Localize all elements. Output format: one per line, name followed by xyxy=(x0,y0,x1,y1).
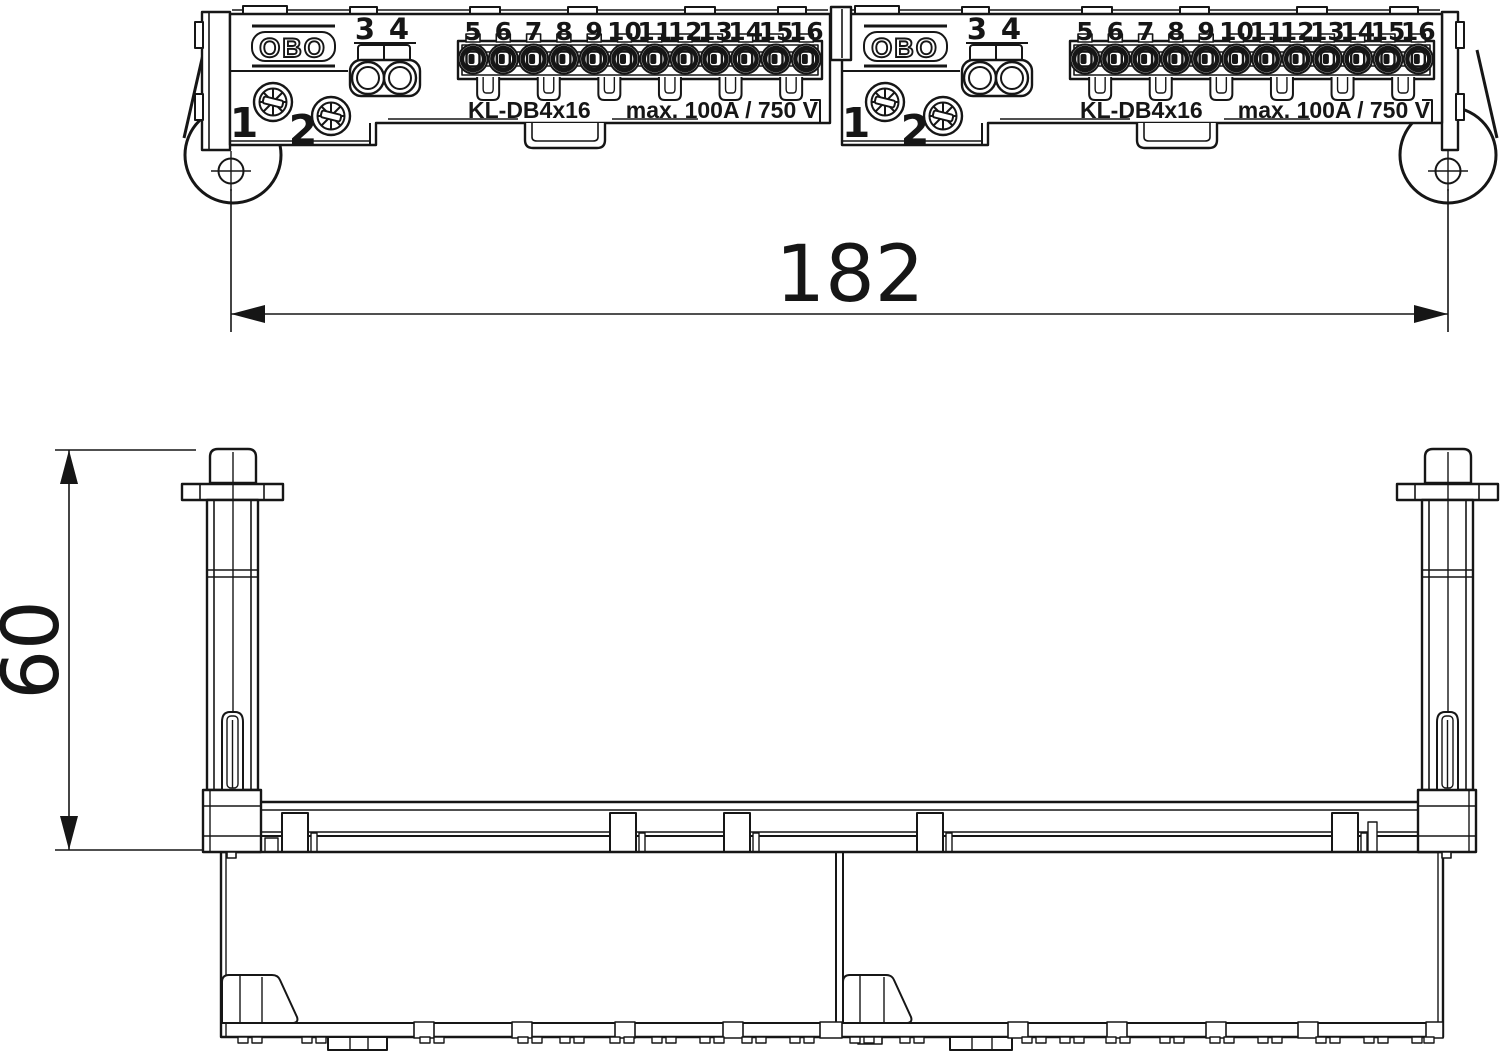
mounting-post-left xyxy=(182,449,283,858)
terminal-contact-14 xyxy=(1353,54,1359,64)
terminal-contact-5 xyxy=(469,54,475,64)
terminal-number-6: 6 xyxy=(495,17,512,46)
terminal-contact-6 xyxy=(1111,54,1117,64)
terminal-label-3: 3 xyxy=(355,12,375,46)
terminal-contact-8 xyxy=(1171,54,1177,64)
foot-tick xyxy=(574,1037,584,1043)
foot-tick xyxy=(742,1037,752,1043)
terminal-contact-15 xyxy=(1384,54,1390,64)
foot-tick xyxy=(864,1037,874,1043)
foot-tick xyxy=(1210,1037,1220,1043)
terminal-contact-12 xyxy=(1293,54,1299,64)
foot-tick xyxy=(652,1037,662,1043)
terminal-label-3: 3 xyxy=(967,12,987,46)
post-base xyxy=(1418,790,1476,852)
foot-tick xyxy=(1060,1037,1070,1043)
drawing-svg: OBO 1 2 3 4 KL-DB4x16 max. 100A / 750 V … xyxy=(0,0,1500,1051)
clip-outer xyxy=(1089,77,1111,100)
terminal-number-16: 16 xyxy=(1401,17,1436,46)
terminal-contact-7 xyxy=(529,54,535,64)
band-divider xyxy=(1107,1022,1127,1038)
dimension-height-value: 60 xyxy=(0,600,77,699)
foot-tick xyxy=(1364,1037,1374,1043)
rail-tab-notch xyxy=(639,833,645,852)
module-junction xyxy=(831,7,851,60)
rail-tab-notch xyxy=(753,833,759,852)
foot-tick xyxy=(518,1037,528,1043)
foot-tick xyxy=(1074,1037,1084,1043)
terminal-number-8: 8 xyxy=(555,17,572,46)
terminal-contact-12 xyxy=(681,54,687,64)
mounting-post-right xyxy=(1397,449,1498,858)
foot-tick xyxy=(714,1037,724,1043)
foot-tick xyxy=(1272,1037,1282,1043)
rail-hook xyxy=(265,838,278,852)
mounting-hole-left xyxy=(211,151,251,191)
terminal-label-4: 4 xyxy=(389,12,409,46)
screw-label-2: 2 xyxy=(289,106,318,154)
foot-tick xyxy=(238,1037,248,1043)
band-divider xyxy=(723,1022,743,1038)
side-view xyxy=(182,449,1498,1050)
band-divider xyxy=(512,1022,532,1038)
screw-label-1: 1 xyxy=(230,99,259,147)
clip-outer xyxy=(659,77,681,100)
terminal-contact-7 xyxy=(1141,54,1147,64)
rail-tab-notch xyxy=(1361,833,1367,852)
band-divider xyxy=(1426,1022,1443,1038)
terminal-contact-13 xyxy=(1323,54,1329,64)
rail-hook xyxy=(1368,822,1377,852)
band-divider xyxy=(1298,1022,1318,1038)
band-divider xyxy=(1206,1022,1226,1038)
terminal-contact-13 xyxy=(711,54,717,64)
band-divider xyxy=(615,1022,635,1038)
terminal-contact-10 xyxy=(620,54,626,64)
terminal-contact-16 xyxy=(1414,54,1420,64)
terminal-number-7: 7 xyxy=(1137,17,1154,46)
foot-tick xyxy=(560,1037,570,1043)
foot-tick xyxy=(624,1037,634,1043)
foot-tick xyxy=(914,1037,924,1043)
module-1: OBO 1 2 3 4 KL-DB4x16 max. 100A / 750 V … xyxy=(230,6,830,154)
screw-label-2: 2 xyxy=(901,106,930,154)
foot-tick xyxy=(666,1037,676,1043)
foot-tick xyxy=(1120,1037,1130,1043)
rail-tab-notch xyxy=(311,833,317,852)
terminal-contact-10 xyxy=(1232,54,1238,64)
foot-tick xyxy=(1160,1037,1170,1043)
clip-outer xyxy=(780,77,802,100)
foot-block-left xyxy=(328,1037,387,1050)
terminal-contact-11 xyxy=(650,54,656,64)
terminal-number-16: 16 xyxy=(789,17,824,46)
foot-tick xyxy=(1106,1037,1116,1043)
technical-drawing: OBO 1 2 3 4 KL-DB4x16 max. 100A / 750 V … xyxy=(0,0,1500,1051)
dimension-height: 60 xyxy=(0,450,203,850)
terminal-number-7: 7 xyxy=(525,17,542,46)
foot-tick xyxy=(900,1037,910,1043)
terminal-number-9: 9 xyxy=(1197,17,1214,46)
body-outline xyxy=(221,852,1443,1037)
foot-tick xyxy=(252,1037,262,1043)
foot-tick xyxy=(1316,1037,1326,1043)
clip-outer xyxy=(538,77,560,100)
terminal-number-6: 6 xyxy=(1107,17,1124,46)
arrowhead-right-icon xyxy=(1414,305,1448,323)
terminal-number-8: 8 xyxy=(1167,17,1184,46)
brand-logo: OBO xyxy=(259,33,327,63)
rail-tab xyxy=(917,813,943,852)
foot-tick xyxy=(1412,1037,1422,1043)
terminal-contact-9 xyxy=(590,54,596,64)
end-plate-left xyxy=(195,12,230,150)
clip-outer xyxy=(1271,77,1293,100)
foot-tick xyxy=(434,1037,444,1043)
foot-tick xyxy=(1378,1037,1388,1043)
foot-tick xyxy=(420,1037,430,1043)
terminal-contact-5 xyxy=(1081,54,1087,64)
foot-tick xyxy=(804,1037,814,1043)
terminal-number-5: 5 xyxy=(1076,17,1093,46)
foot-tick xyxy=(1258,1037,1268,1043)
end-plate-right xyxy=(1442,12,1464,150)
foot-tick xyxy=(1330,1037,1340,1043)
terminal-contact-16 xyxy=(802,54,808,64)
terminal-number-9: 9 xyxy=(585,17,602,46)
terminal-contact-11 xyxy=(1262,54,1268,64)
foot-tick xyxy=(1424,1037,1434,1043)
clip-outer xyxy=(1150,77,1172,100)
clip-outer xyxy=(1210,77,1232,100)
foot-tick xyxy=(302,1037,312,1043)
dimension-width-value: 182 xyxy=(776,230,925,320)
rail-tab xyxy=(1332,813,1358,852)
arrowhead-left-icon xyxy=(231,305,265,323)
foot-tick xyxy=(1022,1037,1032,1043)
foot-tick xyxy=(790,1037,800,1043)
dimension-width: 182 xyxy=(231,189,1448,332)
foot-tick xyxy=(700,1037,710,1043)
foot-tick xyxy=(850,1037,860,1043)
module-2: OBO 1 2 3 4 KL-DB4x16 max. 100A / 750 V … xyxy=(842,6,1442,154)
terminal-contact-15 xyxy=(772,54,778,64)
rail-tab xyxy=(724,813,750,852)
terminal-label-4: 4 xyxy=(1001,12,1021,46)
post-base xyxy=(203,790,261,852)
arrowhead-up-icon xyxy=(60,450,78,484)
terminal-contact-14 xyxy=(741,54,747,64)
mounting-hole-right xyxy=(1428,151,1468,191)
clip-outer xyxy=(477,77,499,100)
terminal-number-5: 5 xyxy=(464,17,481,46)
terminal-contact-9 xyxy=(1202,54,1208,64)
terminal-contact-6 xyxy=(499,54,505,64)
screw-label-1: 1 xyxy=(842,99,871,147)
top-view: OBO 1 2 3 4 KL-DB4x16 max. 100A / 750 V … xyxy=(184,6,1497,203)
foot-tick xyxy=(1224,1037,1234,1043)
band-divider xyxy=(414,1022,434,1038)
arrowhead-down-icon xyxy=(60,816,78,850)
foot-tick xyxy=(756,1037,766,1043)
terminal-contact-8 xyxy=(559,54,565,64)
rail-tab xyxy=(282,813,308,852)
foot-tick xyxy=(532,1037,542,1043)
rail-tab-notch xyxy=(946,833,952,852)
clip-outer xyxy=(598,77,620,100)
rail-tab xyxy=(610,813,636,852)
band-divider xyxy=(820,1022,842,1038)
clip-outer xyxy=(720,77,742,100)
band-divider xyxy=(1008,1022,1028,1038)
clip-outer xyxy=(1392,77,1414,100)
foot-tick xyxy=(1036,1037,1046,1043)
foot-tick xyxy=(316,1037,326,1043)
foot-tick xyxy=(1174,1037,1184,1043)
foot-tick xyxy=(610,1037,620,1043)
clip-outer xyxy=(1332,77,1354,100)
foot-block-right xyxy=(950,1037,1012,1050)
brand-logo: OBO xyxy=(871,33,939,63)
